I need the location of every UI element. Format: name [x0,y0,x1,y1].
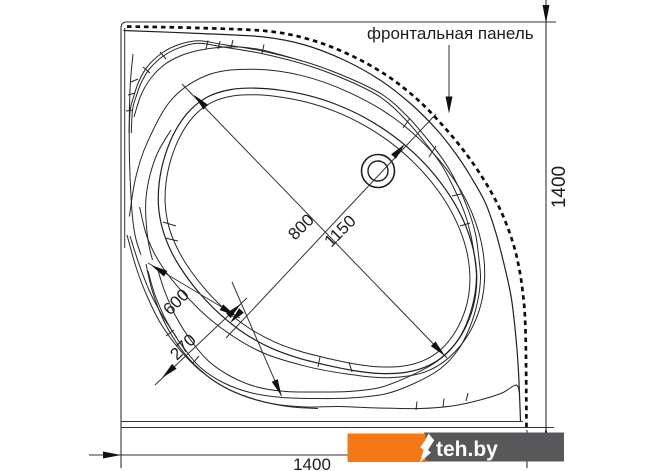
svg-text:teh.by: teh.by [436,438,498,461]
svg-text:фронтальная панель: фронтальная панель [367,24,534,43]
svg-text:1400: 1400 [293,455,331,471]
svg-text:1400: 1400 [549,166,570,208]
